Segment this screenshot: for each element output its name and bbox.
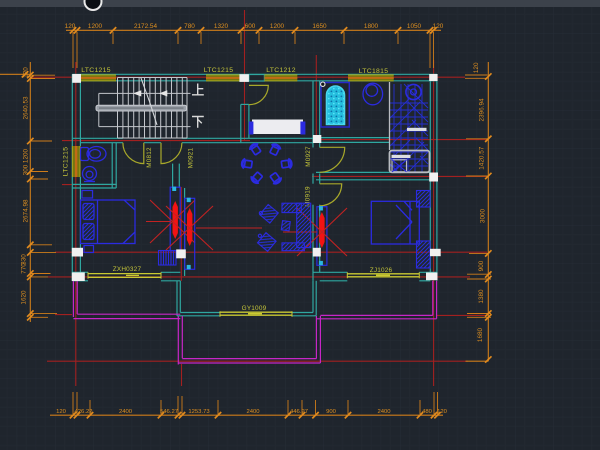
svg-text:2640.53: 2640.53 <box>23 96 30 120</box>
svg-text:2400: 2400 <box>377 409 391 415</box>
svg-text:ZXH0327: ZXH0327 <box>113 266 142 273</box>
svg-text:1650: 1650 <box>312 23 327 30</box>
svg-text:2396.94: 2396.94 <box>479 98 486 122</box>
svg-text:120: 120 <box>437 409 448 415</box>
svg-text:120: 120 <box>65 23 76 30</box>
svg-text:M0927: M0927 <box>305 146 312 167</box>
svg-text:ZJ1026: ZJ1026 <box>370 267 393 274</box>
svg-text:LTC1212: LTC1212 <box>266 67 296 74</box>
svg-text:1680: 1680 <box>477 327 484 342</box>
svg-text:1620: 1620 <box>21 290 28 305</box>
svg-text:1200: 1200 <box>88 23 103 30</box>
svg-text:120: 120 <box>473 62 480 73</box>
svg-text:M0812: M0812 <box>146 147 153 168</box>
svg-text:LTC1215: LTC1215 <box>63 147 70 177</box>
svg-text:GY1009: GY1009 <box>242 305 267 312</box>
svg-text:1200: 1200 <box>23 148 30 163</box>
svg-text:LTC1215: LTC1215 <box>81 67 111 74</box>
svg-text:3000: 3000 <box>480 208 487 223</box>
svg-text:480: 480 <box>422 409 433 415</box>
svg-text:2172.54: 2172.54 <box>134 23 158 30</box>
svg-text:2400: 2400 <box>119 409 133 415</box>
svg-text:900: 900 <box>478 260 485 271</box>
svg-text:M0921: M0921 <box>188 147 195 168</box>
svg-text:1380: 1380 <box>478 289 485 304</box>
svg-text:1800: 1800 <box>364 23 379 30</box>
svg-text:2400: 2400 <box>246 409 260 415</box>
svg-text:900: 900 <box>326 409 337 415</box>
svg-text:780: 780 <box>184 23 195 30</box>
svg-text:120: 120 <box>23 67 30 78</box>
svg-text:300: 300 <box>23 164 30 175</box>
svg-text:600: 600 <box>245 23 256 30</box>
svg-text:1320: 1320 <box>214 23 229 30</box>
svg-text:770: 770 <box>21 263 28 274</box>
svg-text:120: 120 <box>433 23 444 30</box>
svg-text:LTC1215: LTC1215 <box>204 67 234 74</box>
svg-text:LTC1815: LTC1815 <box>359 68 389 75</box>
svg-text:546.27: 546.27 <box>160 409 178 415</box>
svg-text:1420.57: 1420.57 <box>479 146 486 170</box>
svg-text:120: 120 <box>56 409 67 415</box>
svg-text:1050: 1050 <box>407 23 422 30</box>
svg-text:2674.98: 2674.98 <box>23 199 30 223</box>
svg-text:426.22: 426.22 <box>74 409 92 415</box>
svg-text:446.27: 446.27 <box>290 409 308 415</box>
svg-text:1200: 1200 <box>270 23 285 30</box>
svg-text:1253.73: 1253.73 <box>188 409 210 415</box>
